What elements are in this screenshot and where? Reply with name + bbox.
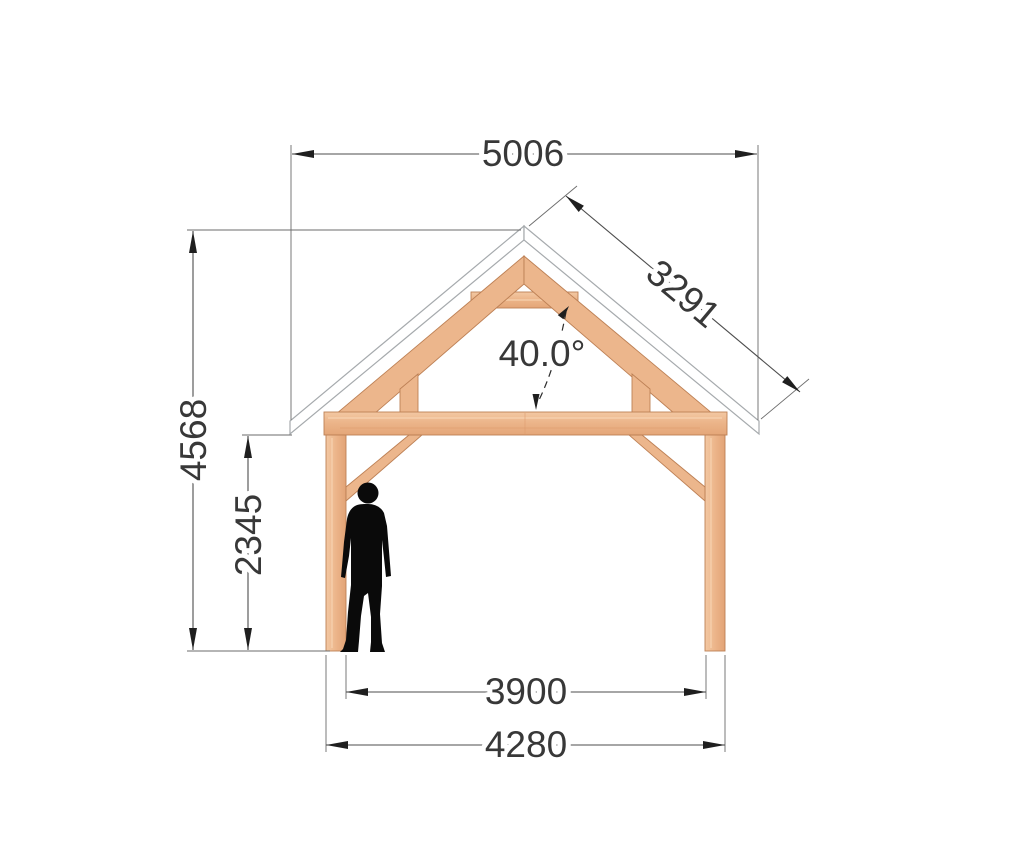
arrow-right [735,150,757,158]
dim-height-total-label: 4568 [173,399,214,481]
elevation-drawing-canvas: 5006 3291 40.0° 4568 2345 3900 [0,0,1024,853]
arrow-eave-top [244,436,252,458]
arrow-slope-top [566,196,584,212]
arrow-eave-bottom [244,628,252,650]
dimension-height-eave: 2345 [228,436,269,650]
dimension-roof-width: 5006 [292,133,757,174]
timber-frame-elevation: 5006 3291 40.0° 4568 2345 3900 [0,0,1024,853]
arrow-angle-bottom [533,394,540,410]
arrow-slope-bottom [782,376,800,392]
person-silhouette [340,483,391,653]
arrow-outer-left [326,741,348,749]
arrow-left [292,150,314,158]
timber-structure [324,256,727,651]
arrow-outer-right [703,741,725,749]
dimension-span-inner: 3900 [346,671,706,712]
ext-slope-top [529,186,577,226]
ext-slope-bottom [761,379,809,419]
arrow-inner-right [684,688,706,696]
arrow-height-bottom [189,628,197,650]
post-right [705,435,725,651]
post-left [326,435,346,651]
knee-brace-left [346,435,422,501]
dim-span-outer-label: 4280 [485,724,567,765]
dimension-span-outer: 4280 [326,724,725,765]
dim-height-eave-label: 2345 [228,494,269,576]
rafter-left [336,256,524,414]
knee-brace-right [629,435,705,501]
arrow-inner-left [346,688,368,696]
dim-span-inner-label: 3900 [485,671,567,712]
dimension-height-total: 4568 [173,231,214,650]
person-body [340,504,391,652]
dim-roof-width-label: 5006 [482,133,564,174]
arrow-height-top [189,231,197,253]
dim-roof-slope-label: 3291 [639,251,728,335]
person-head [358,483,379,504]
dim-roof-angle-label: 40.0° [499,333,586,374]
